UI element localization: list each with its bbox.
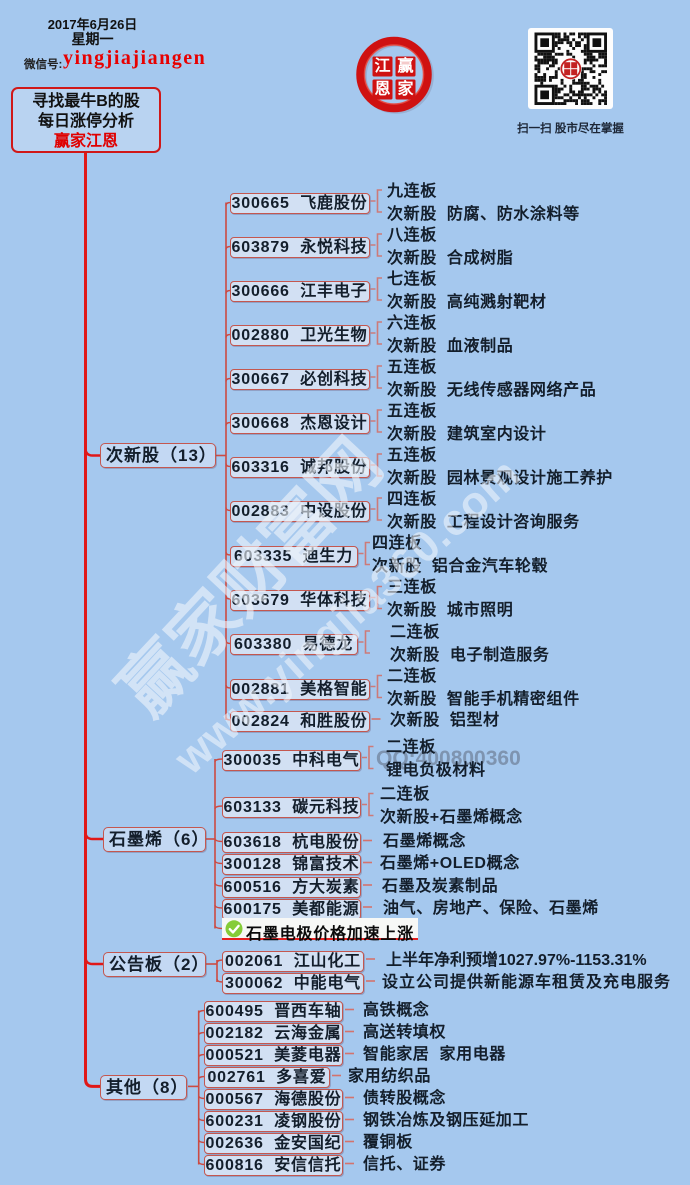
svg-text:恩: 恩: [374, 80, 390, 98]
svg-text:江: 江: [374, 57, 390, 75]
svg-text:赢: 赢: [397, 56, 413, 75]
svg-text:家: 家: [397, 79, 414, 98]
